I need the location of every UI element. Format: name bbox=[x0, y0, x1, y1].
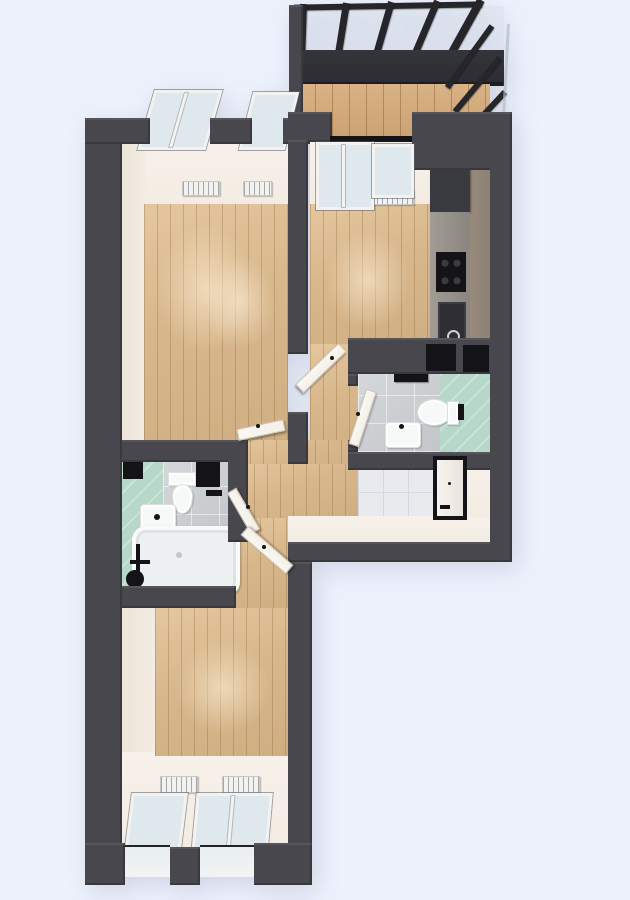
wall-bottom-pier bbox=[170, 847, 200, 885]
bedroom-light-patch bbox=[175, 640, 270, 735]
duct-niche bbox=[463, 345, 489, 372]
kitchen-window bbox=[372, 144, 414, 198]
wall-top-pier bbox=[85, 118, 150, 144]
wall-bathroom-right-bottom bbox=[348, 452, 512, 470]
living-room-wall-face-left bbox=[122, 142, 146, 442]
basin-faucet bbox=[399, 424, 404, 429]
wall-bathroom-right-jamb bbox=[348, 374, 358, 386]
radiator bbox=[243, 181, 272, 196]
towel-rail bbox=[206, 490, 222, 496]
bedroom-door-handle bbox=[262, 545, 266, 549]
floor-plan-scene bbox=[0, 0, 630, 900]
kitchen-balcony-door bbox=[316, 142, 374, 210]
wall-left-outer bbox=[85, 118, 122, 848]
wall-partition-living-kitchen bbox=[288, 140, 308, 354]
toilet-flush-plate bbox=[458, 404, 464, 420]
entrance-door-peephole bbox=[448, 482, 451, 485]
bathroom-left-door-handle bbox=[246, 505, 250, 509]
wall-bottom-pier bbox=[254, 843, 312, 885]
toilet-bowl bbox=[417, 399, 451, 426]
bathroom-right-door-handle bbox=[356, 412, 360, 416]
shower-arm bbox=[130, 560, 150, 564]
basin-faucet bbox=[154, 514, 160, 520]
wall-bedroom-right bbox=[288, 562, 312, 848]
radiator bbox=[222, 776, 260, 793]
wall-living-bottom bbox=[122, 440, 238, 462]
living-room-light-patch bbox=[205, 255, 275, 350]
bathtub-drain bbox=[176, 552, 182, 558]
cooktop bbox=[436, 252, 466, 292]
kitchen-wall-face-right bbox=[470, 148, 490, 344]
apartment-plan bbox=[0, 0, 630, 900]
kitchen-door-handle bbox=[330, 356, 334, 360]
bedroom-window-glass-gap bbox=[125, 845, 170, 877]
wall-partition-stub bbox=[288, 412, 308, 464]
wall-top-pier bbox=[210, 118, 252, 144]
wall-hall-bottom bbox=[288, 542, 512, 562]
wall-kitchen-top-left bbox=[288, 112, 332, 142]
living-room-wall-face-top bbox=[122, 142, 288, 208]
duct-niche bbox=[426, 344, 456, 371]
bedroom-window-glass-gap bbox=[200, 845, 254, 877]
radiator bbox=[160, 776, 198, 793]
radiator bbox=[182, 181, 220, 196]
entrance-door-handle bbox=[440, 505, 450, 509]
living-room-door-handle bbox=[256, 424, 260, 428]
kitchen-light-patch bbox=[325, 230, 410, 330]
wall-right-outer bbox=[490, 112, 512, 562]
wall-bottom-pier bbox=[85, 843, 125, 885]
wall-bathroom-left-bottom bbox=[122, 586, 236, 608]
